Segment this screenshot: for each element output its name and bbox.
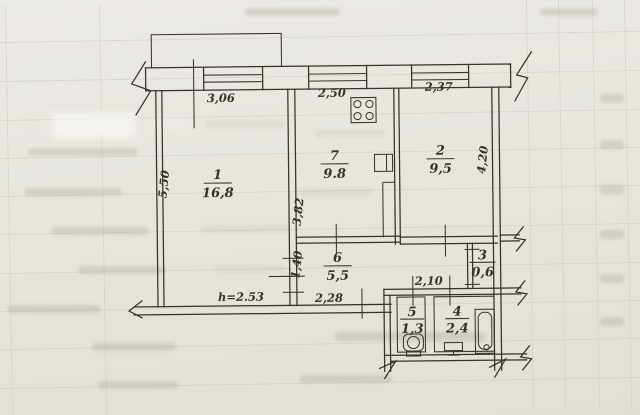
room-6-number: 6: [333, 251, 342, 266]
whiteout-smudge: [52, 112, 190, 138]
dim-top-right-label: 2,37: [424, 80, 453, 94]
room-4-number: 4: [453, 305, 462, 320]
vent-shaft-icon: [374, 154, 392, 171]
room-5-number: 5: [408, 305, 417, 320]
dim-inner-wall-label: 3,82: [290, 197, 307, 226]
apartment-plan: 3,06 2,50 2,37 5,50 3,82 4,20 1,40 2,28 …: [126, 31, 535, 381]
bathtub-icon: [475, 309, 494, 353]
east-wall: [492, 87, 502, 370]
room-5-label: 5 1,3: [400, 305, 424, 337]
wall-kitchen-hall: [296, 236, 400, 243]
room-6-area: 5,5: [326, 269, 349, 284]
room-7-number: 7: [330, 149, 339, 164]
dim-top-middle-label: 2,50: [317, 86, 346, 100]
wall-room2-south: [400, 236, 497, 244]
wall-break-top-left-icon: [131, 62, 151, 115]
room-1-area: 16,8: [202, 186, 234, 201]
room-7-area: 9.8: [323, 167, 346, 182]
gas-stove-icon: [351, 97, 376, 122]
dimension-extension-line: [193, 59, 194, 128]
dim-bath-hall-label: 2,10: [414, 274, 443, 288]
window-icon-middle: [309, 74, 367, 82]
ceiling-height-label: h=2.53: [218, 290, 264, 304]
floor-plan-canvas: 3,06 2,50 2,37 5,50 3,82 4,20 1,40 2,28 …: [0, 0, 640, 415]
neighbor-wall-stub-2: [501, 281, 527, 305]
room-1-label: 1 16,8: [202, 168, 234, 201]
wall-kitchen-room2: [382, 88, 401, 244]
room-2-label: 2 9,5: [426, 144, 454, 177]
room-4-area: 2,4: [445, 321, 469, 336]
south-wall: [134, 304, 391, 315]
dim-right-wall-label: 4,20: [474, 145, 491, 174]
wall-break-east-bottom-icon: [490, 359, 506, 377]
dim-left-wall-label: 5,50: [155, 169, 172, 198]
dim-living-opening-label: 1,40: [288, 250, 305, 279]
scanned-floor-plan-page: 3,06 2,50 2,37 5,50 3,82 4,20 1,40 2,28 …: [0, 0, 640, 415]
wall-break-top-right-icon: [514, 52, 532, 101]
room-2-number: 2: [435, 144, 445, 159]
neighbor-wall-stub-1: [500, 227, 525, 251]
paper-grid: [0, 0, 640, 415]
sink-icon: [444, 343, 462, 356]
room-3-number: 3: [478, 248, 487, 263]
room-3-label: 3 0,6: [469, 248, 495, 280]
window-icon-left: [204, 75, 263, 83]
neighbor-wall-stub-3: [520, 346, 531, 370]
room-3-area: 0,6: [471, 265, 494, 280]
room-4-label: 4 2,4: [445, 304, 470, 336]
room-7-label: 7 9.8: [320, 149, 348, 182]
dim-top-left-label: 3,06: [207, 91, 235, 105]
room-1-number: 1: [213, 168, 222, 183]
dim-hall-bottom-label: 2,28: [314, 291, 343, 305]
room-5-area: 1,3: [401, 322, 424, 337]
room-2-area: 9,5: [429, 162, 452, 177]
